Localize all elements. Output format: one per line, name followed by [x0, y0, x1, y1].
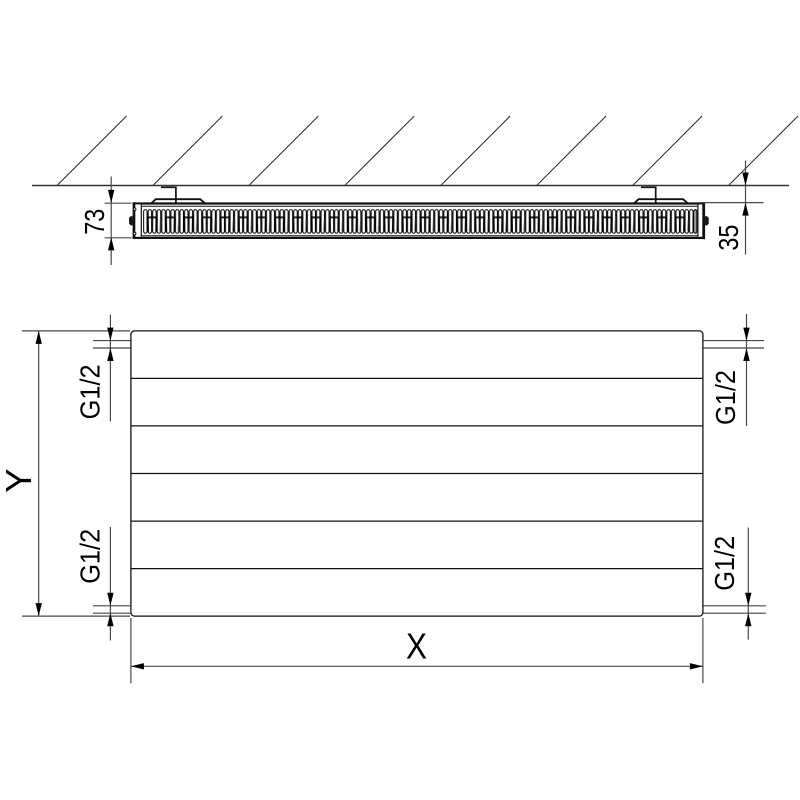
- svg-text:35: 35: [713, 225, 744, 251]
- svg-text:G1/2: G1/2: [709, 536, 740, 591]
- svg-text:G1/2: G1/2: [75, 529, 106, 584]
- svg-text:Y: Y: [0, 468, 39, 492]
- svg-text:73: 73: [79, 209, 110, 235]
- svg-text:G1/2: G1/2: [710, 370, 741, 425]
- svg-text:G1/2: G1/2: [75, 364, 106, 419]
- svg-text:X: X: [406, 626, 427, 667]
